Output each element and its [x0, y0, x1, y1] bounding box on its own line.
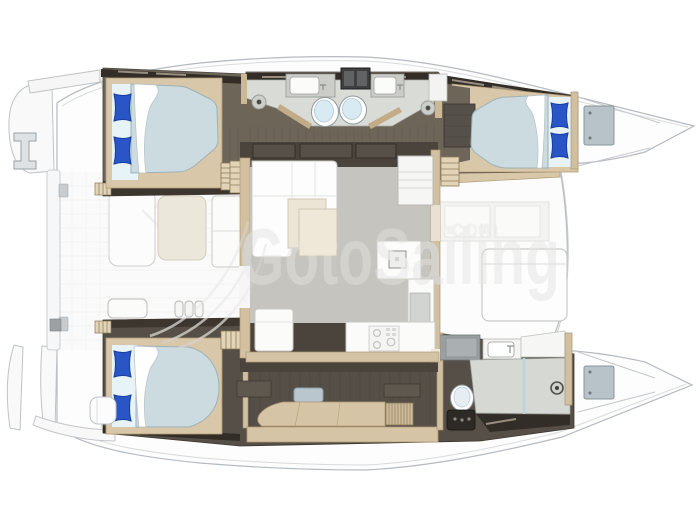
svg-text:GotoSailing: GotoSailing [240, 212, 560, 301]
svg-text:com: com [451, 215, 499, 243]
